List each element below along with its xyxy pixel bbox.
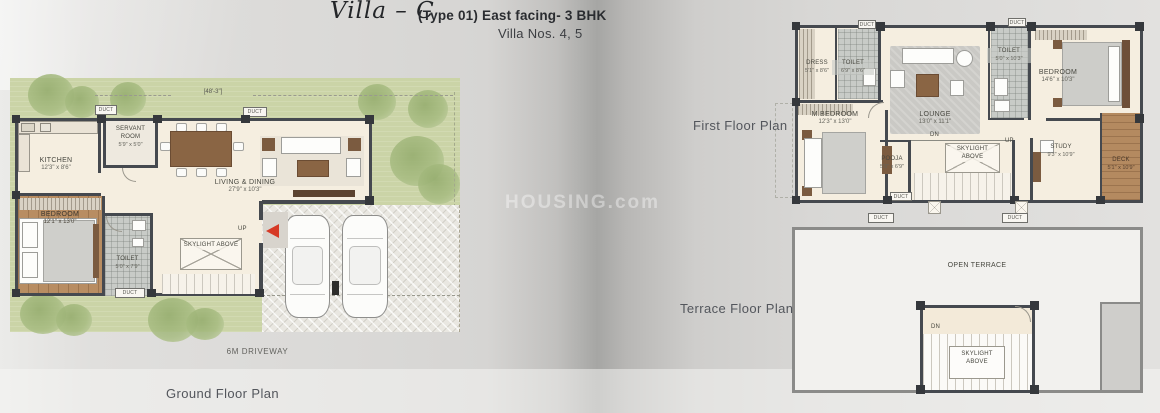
coffee-table	[297, 160, 329, 177]
wall-pier	[1030, 385, 1039, 394]
wall	[795, 100, 883, 103]
wall-pier	[12, 115, 20, 123]
wall	[988, 118, 1024, 120]
wall-pier	[792, 98, 800, 106]
bed-pillow	[22, 252, 38, 278]
skylight-text: SKYLIGHT ABOVE	[947, 146, 998, 162]
tree-icon	[186, 308, 224, 340]
sofa	[902, 48, 954, 64]
bed-mattress	[43, 220, 95, 282]
ground-floor-plan-label: Ground Floor Plan	[166, 386, 279, 401]
wall-pier	[1027, 22, 1036, 31]
wardrobe	[19, 198, 101, 210]
wall-light	[911, 140, 1012, 141]
wall-pier	[916, 301, 925, 310]
dn-label: DN	[930, 132, 939, 138]
bed-mattress	[822, 132, 866, 194]
wall	[988, 28, 990, 120]
room-label-mbedroom: M.BEDROOM 12'3" x 13'0"	[800, 110, 870, 127]
chair	[233, 142, 244, 151]
driveway-label: 6M DRIVEWAY	[190, 347, 325, 356]
up-label: UP	[1005, 138, 1014, 144]
first-floor-plan-label: First Floor Plan	[693, 118, 788, 133]
room-label-bedroom: BEDROOM 12'1" x 13'0"	[30, 210, 90, 227]
plot-dimension: [48'-3"]	[173, 89, 253, 95]
wall	[150, 213, 153, 296]
wall	[880, 140, 910, 142]
duct-label: DUCT	[858, 20, 876, 29]
toilet-wc-icon	[994, 78, 1008, 96]
room-label-lounge: LOUNGE 13'0" x 11'1"	[895, 110, 975, 127]
wall-pier	[12, 289, 20, 297]
skylight-label: SKYLIGHT ABOVE	[947, 146, 998, 162]
room-label-toilet: TOILET 5'0" x 7'9"	[107, 256, 148, 271]
stairs	[162, 274, 255, 294]
room-dim: 12'3" x 8'6"	[24, 165, 88, 173]
stair-enclosure: DN SKYLIGHT ABOVE	[920, 305, 1035, 393]
room-label-kitchen: KITCHEN 12'3" x 8'6"	[24, 156, 88, 173]
room-dim: 5'0" x 10'3"	[987, 56, 1031, 63]
duct-label: DUCT	[868, 213, 894, 223]
room-label-deck: DECK 5'1" x 10'9"	[1102, 157, 1140, 172]
room-dim: 5'0" x 7'9"	[107, 264, 148, 271]
sink-icon	[40, 123, 51, 132]
room-label-bedroom2: BEDROOM 14'6" x 10'3"	[1025, 68, 1091, 85]
room-name: DECK	[1102, 157, 1140, 165]
wall-pier	[792, 196, 800, 204]
armchair	[956, 50, 973, 67]
room-dim: 5'1" x 10'9"	[1102, 165, 1140, 172]
bed-bench	[93, 224, 99, 278]
coffee-table	[916, 74, 939, 97]
side-table	[1053, 98, 1062, 107]
wall-pier	[153, 115, 162, 123]
wall-pier	[147, 289, 156, 297]
skylight-text: SKYLIGHT ABOVE	[950, 351, 1004, 367]
room-label-pooja: POOJA 5'0" x 6'9"	[872, 156, 912, 171]
ground-floor-plan: [48'-3"] KITCHEN	[10, 78, 460, 332]
open-terrace-label: OPEN TERRACE	[937, 261, 1017, 270]
room-name: TOILET	[107, 256, 148, 264]
wall-pier	[876, 22, 885, 31]
stove-icon	[21, 123, 35, 132]
side-table	[1053, 40, 1062, 49]
wall-pier	[97, 115, 106, 123]
brochure-page: Villa – C (Type 01) East facing- 3 BHK V…	[0, 0, 1160, 413]
room-dim: 14'6" x 10'3"	[1025, 77, 1091, 85]
room-label-dress: DRESS 5'1" x 8'6"	[798, 60, 836, 75]
room-dim: 9'3" x 10'9"	[1030, 152, 1092, 159]
wall-pier	[241, 115, 250, 123]
skylight-text: SKYLIGHT ABOVE	[182, 242, 240, 250]
entry-arrow-icon	[266, 224, 279, 238]
terrace-floor-plan: OPEN TERRACE DN SKYLIGHT ABOVE	[792, 227, 1143, 393]
armchair	[890, 70, 905, 88]
deck-floor: DECK 5'1" x 10'9"	[1100, 113, 1140, 200]
skylight-label: SKYLIGHT ABOVE	[950, 351, 1004, 367]
room-name: DRESS	[798, 60, 836, 68]
room-name: LOUNGE	[895, 110, 975, 119]
duct-label: DUCT	[95, 105, 117, 115]
wall-pier	[365, 196, 374, 205]
skylight-label: SKYLIGHT ABOVE	[182, 242, 240, 250]
wall	[155, 118, 158, 168]
wall-pier	[255, 289, 264, 297]
armchair	[950, 80, 964, 96]
room-label-study: STUDY 9'3" x 10'9"	[1030, 144, 1092, 159]
side-table	[262, 138, 275, 151]
car-icon	[342, 215, 388, 318]
watermark: HOUSING.com	[505, 192, 660, 214]
first-floor-plan: DRESS 5'1" x 8'6" TOILET 6'9" x 8'6" DUC…	[790, 18, 1146, 218]
bed-headboard	[804, 138, 822, 188]
room-dim: 12'3" x 13'0"	[800, 119, 870, 127]
chair	[196, 168, 207, 177]
duct-shaft	[928, 201, 941, 214]
wall	[262, 200, 372, 204]
room-name: TOILET	[832, 60, 874, 68]
room-name: SERVANT ROOM	[106, 126, 155, 142]
tree-icon	[65, 86, 99, 118]
up-label: UP	[238, 226, 247, 232]
toilet-sink-icon	[994, 100, 1010, 112]
setback-line	[454, 92, 455, 207]
room-dim: 12'1" x 13'0"	[30, 219, 90, 227]
wardrobe	[1035, 30, 1087, 40]
room-dim: 5'9" x 5'0"	[106, 142, 155, 149]
armchair	[346, 158, 361, 177]
villa-type-subtitle: (Type 01) East facing- 3 BHK	[418, 8, 606, 23]
wall-pier	[1030, 301, 1039, 310]
chair	[176, 168, 187, 177]
wall-pier	[883, 196, 892, 204]
room-name: LIVING & DINING	[200, 178, 290, 187]
room-name: BEDROOM	[1025, 68, 1091, 77]
toilet-wc-icon	[132, 220, 146, 231]
room-name: BEDROOM	[30, 210, 90, 219]
armchair	[262, 158, 277, 177]
tv-unit	[293, 190, 355, 197]
room-label-toilet1: TOILET 6'9" x 8'6"	[832, 60, 874, 75]
wall-pier	[1135, 114, 1144, 123]
room-name: POOJA	[872, 156, 912, 164]
side-table	[348, 138, 361, 151]
room-dim: 13'0" x 11'1"	[895, 119, 975, 127]
bed-headboard	[1122, 40, 1130, 108]
room-label-living: LIVING & DINING 27'9" x 10'3"	[200, 178, 290, 195]
room-dim: 27'9" x 10'3"	[200, 187, 290, 195]
room-dim: 5'0" x 6'9"	[872, 164, 912, 171]
bed-pillow	[1108, 46, 1120, 102]
dn-label: DN	[931, 324, 940, 330]
tree-icon	[56, 304, 92, 336]
wall-pier	[1135, 22, 1144, 31]
driveway-post	[332, 281, 339, 295]
room-dim: 6'9" x 8'6"	[832, 68, 874, 75]
chair	[216, 168, 227, 177]
wall-pier	[365, 115, 374, 124]
stairs	[914, 173, 1012, 200]
terrace-step	[1100, 302, 1140, 390]
room-name: STUDY	[1030, 144, 1092, 152]
duct-label: DUCT	[1002, 213, 1028, 223]
room-name: M.BEDROOM	[800, 110, 870, 119]
wall	[878, 28, 881, 103]
wall-pier	[986, 22, 995, 31]
wall	[98, 118, 101, 173]
sofa	[281, 137, 341, 154]
car-icon	[285, 215, 330, 318]
dimension-line	[95, 95, 171, 96]
villa-numbers: Villa Nos. 4, 5	[498, 26, 582, 41]
wall-pier	[916, 385, 925, 394]
toilet-sink-icon	[132, 238, 144, 247]
duct-label: DUCT	[1008, 18, 1026, 27]
wall	[1012, 140, 1015, 200]
room-label-toilet2: TOILET 5'0" x 10'3"	[987, 48, 1031, 63]
duct-label: DUCT	[890, 192, 912, 201]
open-terrace-text: OPEN TERRACE	[937, 261, 1017, 270]
wall-pier	[1096, 196, 1105, 204]
dimension-line	[253, 95, 453, 96]
dining-table	[170, 131, 232, 167]
tree-icon	[358, 84, 396, 120]
duct-label: DUCT	[115, 288, 145, 298]
room-label-servant: SERVANT ROOM 5'9" x 5'0"	[106, 126, 155, 149]
terrace-floor-plan-label: Terrace Floor Plan	[680, 301, 793, 316]
room-name: KITCHEN	[24, 156, 88, 165]
wall-pier	[792, 22, 800, 30]
room-dim: 5'1" x 8'6"	[798, 68, 836, 75]
room-name: TOILET	[987, 48, 1031, 56]
wall-pier	[12, 191, 20, 199]
